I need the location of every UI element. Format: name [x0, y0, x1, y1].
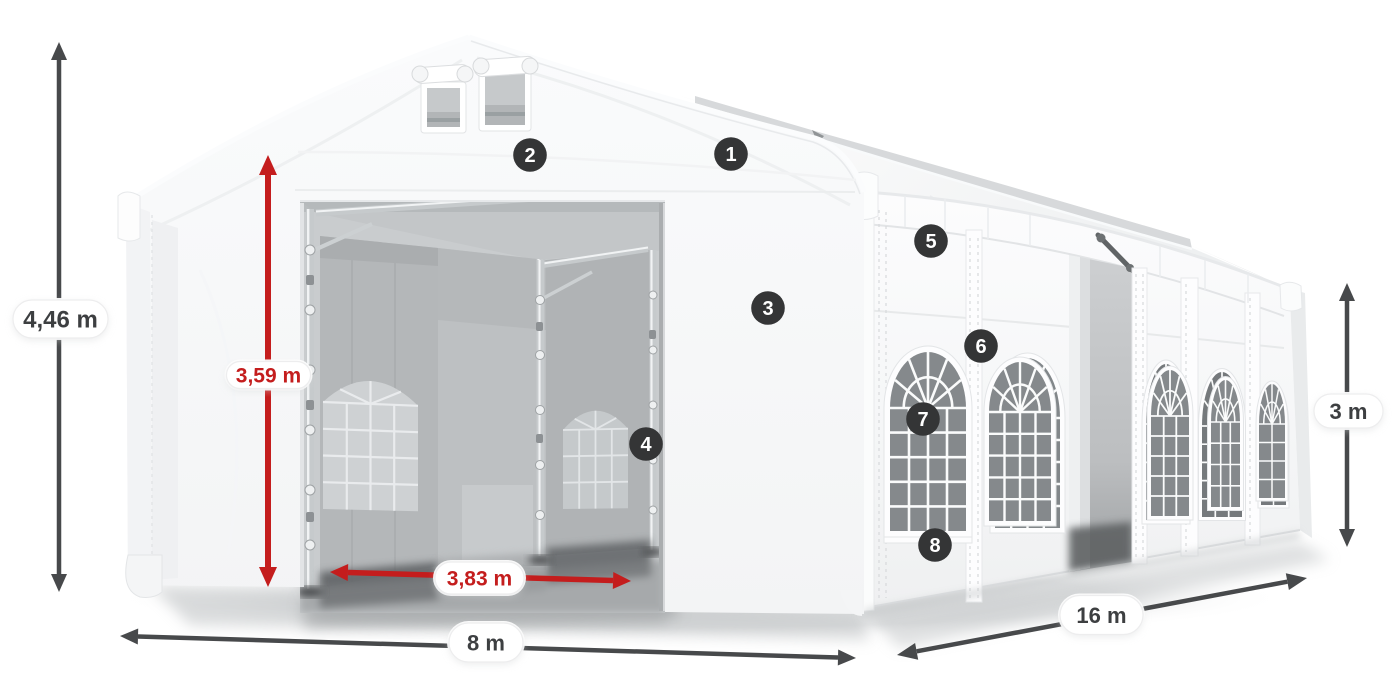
svg-text:4,46 m: 4,46 m — [23, 307, 98, 334]
svg-text:3 m: 3 m — [1330, 399, 1368, 424]
svg-text:16 m: 16 m — [1076, 603, 1126, 628]
svg-text:8 m: 8 m — [467, 630, 505, 655]
svg-text:3,83 m: 3,83 m — [447, 568, 512, 591]
svg-text:4: 4 — [640, 434, 652, 456]
svg-text:7: 7 — [917, 409, 928, 431]
svg-text:1: 1 — [725, 144, 736, 166]
svg-text:6: 6 — [975, 336, 986, 358]
svg-text:3,59 m: 3,59 m — [236, 365, 301, 388]
svg-text:8: 8 — [929, 535, 940, 557]
svg-text:5: 5 — [925, 231, 936, 253]
svg-text:3: 3 — [762, 298, 773, 320]
svg-text:2: 2 — [524, 145, 535, 167]
